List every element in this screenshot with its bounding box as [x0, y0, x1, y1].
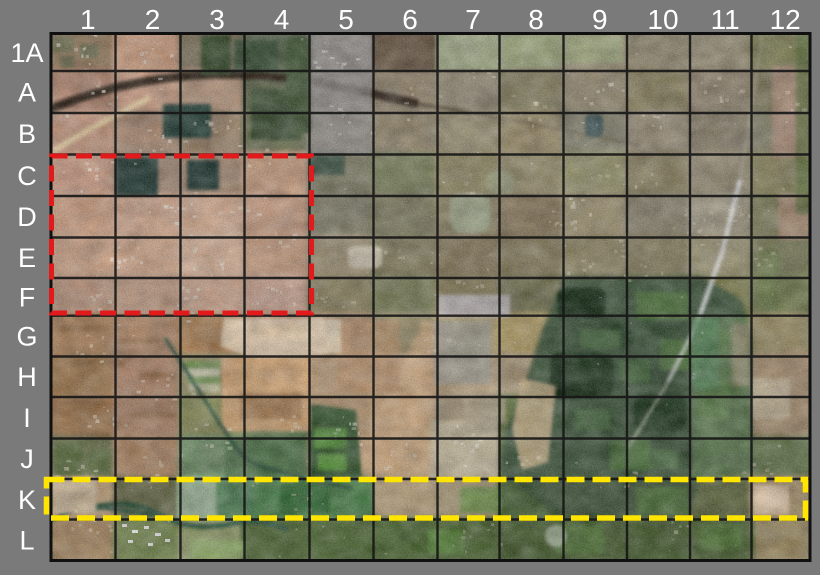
svg-text:B: B: [18, 119, 36, 149]
svg-text:J: J: [20, 444, 34, 474]
svg-text:6: 6: [402, 4, 418, 35]
svg-text:H: H: [17, 362, 37, 392]
svg-text:E: E: [18, 243, 36, 273]
svg-text:3: 3: [209, 4, 225, 35]
svg-text:D: D: [17, 202, 37, 232]
svg-text:I: I: [23, 403, 31, 433]
svg-text:7: 7: [465, 4, 481, 35]
svg-text:F: F: [19, 282, 36, 312]
svg-text:2: 2: [145, 4, 161, 35]
svg-text:8: 8: [528, 4, 544, 35]
svg-text:A: A: [18, 78, 36, 108]
svg-text:12: 12: [770, 4, 801, 35]
svg-text:1: 1: [80, 4, 96, 35]
svg-text:5: 5: [338, 4, 354, 35]
svg-text:G: G: [16, 322, 37, 352]
svg-text:K: K: [18, 485, 36, 515]
svg-text:11: 11: [711, 4, 740, 35]
svg-text:10: 10: [647, 4, 678, 35]
svg-text:9: 9: [592, 4, 608, 35]
svg-text:1A: 1A: [10, 38, 43, 68]
svg-text:L: L: [19, 526, 34, 556]
svg-text:C: C: [17, 161, 37, 191]
svg-text:4: 4: [274, 4, 290, 35]
